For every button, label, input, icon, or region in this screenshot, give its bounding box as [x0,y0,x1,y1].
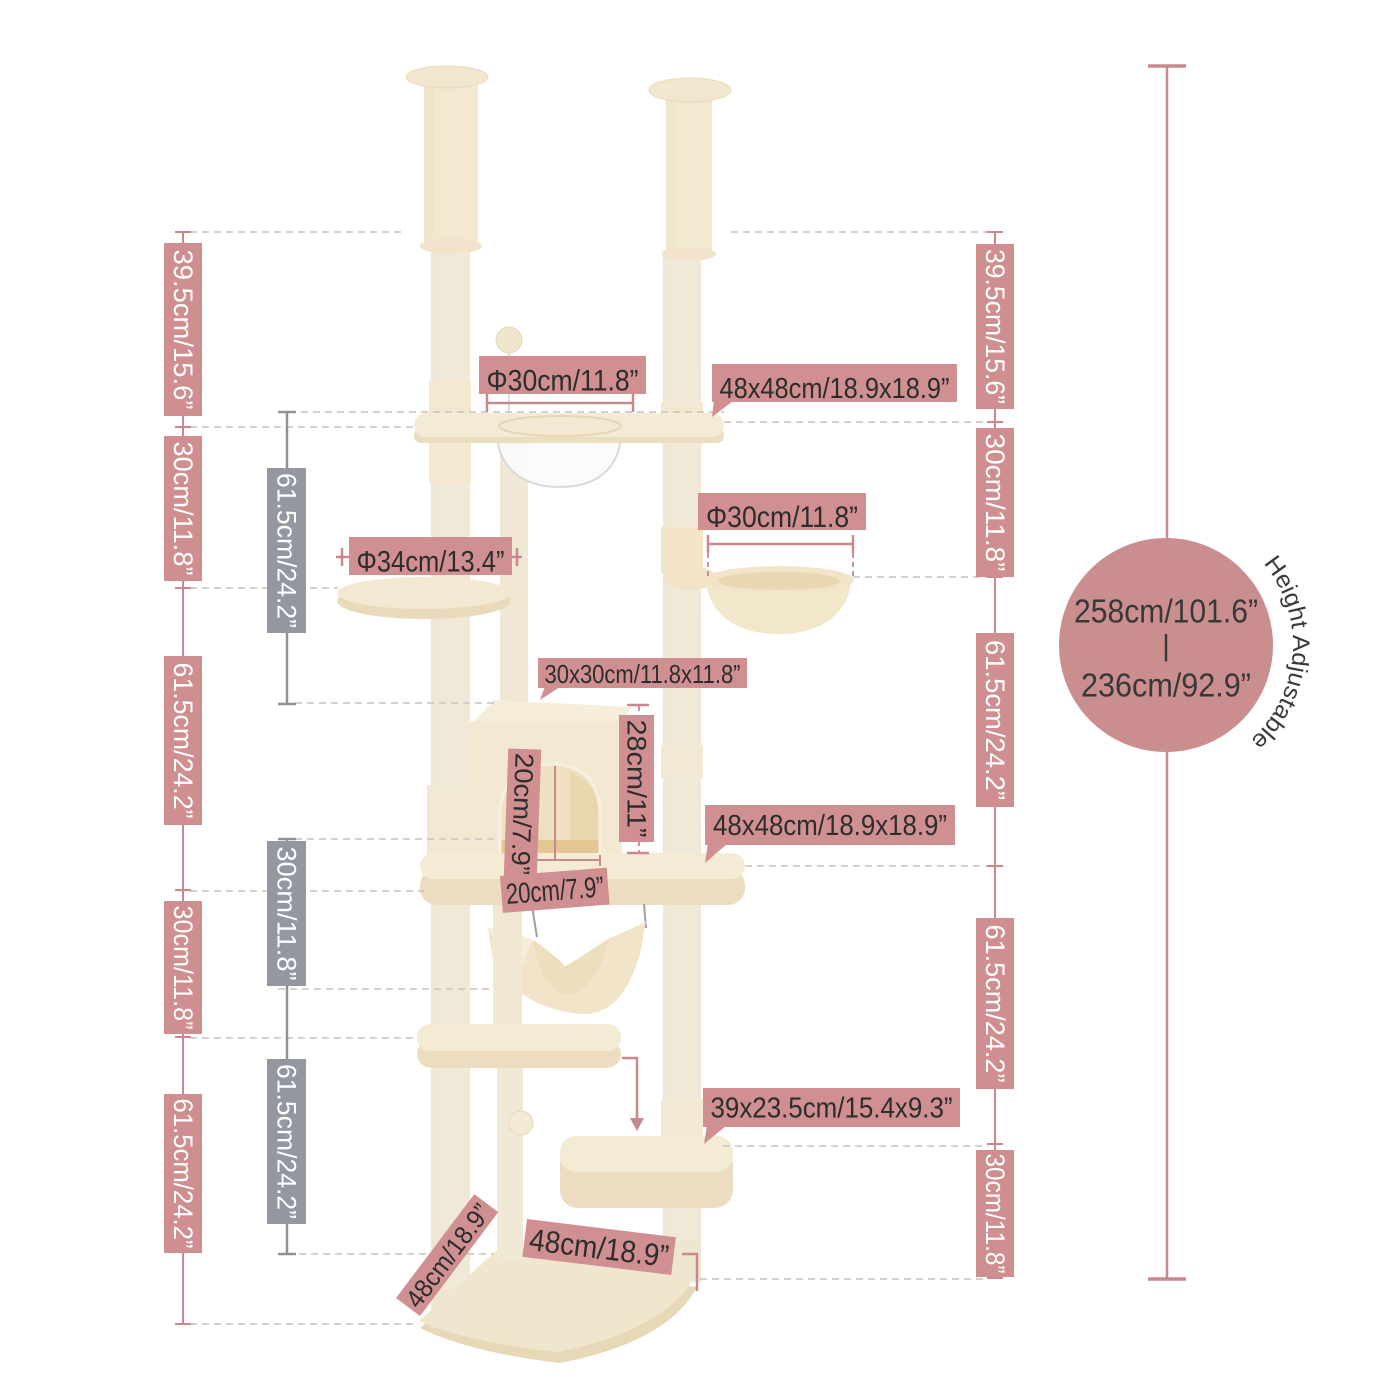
svg-text:20cm/7.9”: 20cm/7.9” [505,753,539,876]
svg-text:Φ30cm/11.8”: Φ30cm/11.8” [706,501,858,534]
svg-text:Φ34cm/13.4”: Φ34cm/13.4” [357,546,505,579]
svg-text:Φ30cm/11.8”: Φ30cm/11.8” [487,365,639,398]
svg-text:30cm/11.8”: 30cm/11.8” [272,847,302,981]
svg-text:48x48cm/18.9x18.9”: 48x48cm/18.9x18.9” [720,373,950,405]
svg-text:61.5cm/24.2”: 61.5cm/24.2” [168,1099,198,1249]
svg-text:39.5cm/15.6”: 39.5cm/15.6” [168,250,198,410]
svg-text:258cm/101.6”: 258cm/101.6” [1074,593,1258,630]
svg-text:236cm/92.9”: 236cm/92.9” [1081,667,1251,704]
svg-text:61.5cm/24.2”: 61.5cm/24.2” [980,640,1010,800]
svg-text:30cm/11.8”: 30cm/11.8” [980,1154,1010,1274]
svg-text:48x48cm/18.9x18.9”: 48x48cm/18.9x18.9” [713,810,947,842]
svg-text:39.5cm/15.6”: 39.5cm/15.6” [980,249,1010,404]
svg-text:30cm/11.8”: 30cm/11.8” [980,434,1010,572]
svg-text:39x23.5cm/15.4x9.3”: 39x23.5cm/15.4x9.3” [711,1093,953,1125]
svg-text:61.5cm/24.2”: 61.5cm/24.2” [168,663,198,819]
svg-text:30cm/11.8”: 30cm/11.8” [168,442,198,576]
svg-text:30x30cm/11.8x11.8”: 30x30cm/11.8x11.8” [545,659,741,689]
svg-text:28cm/11”: 28cm/11” [622,720,652,838]
svg-text:61.5cm/24.2”: 61.5cm/24.2” [980,925,1010,1083]
svg-text:61.5cm/24.2”: 61.5cm/24.2” [272,473,302,628]
svg-text:|: | [1162,630,1170,663]
svg-text:61.5cm/24.2”: 61.5cm/24.2” [272,1064,302,1219]
svg-text:30cm/11.8”: 30cm/11.8” [168,906,198,1030]
